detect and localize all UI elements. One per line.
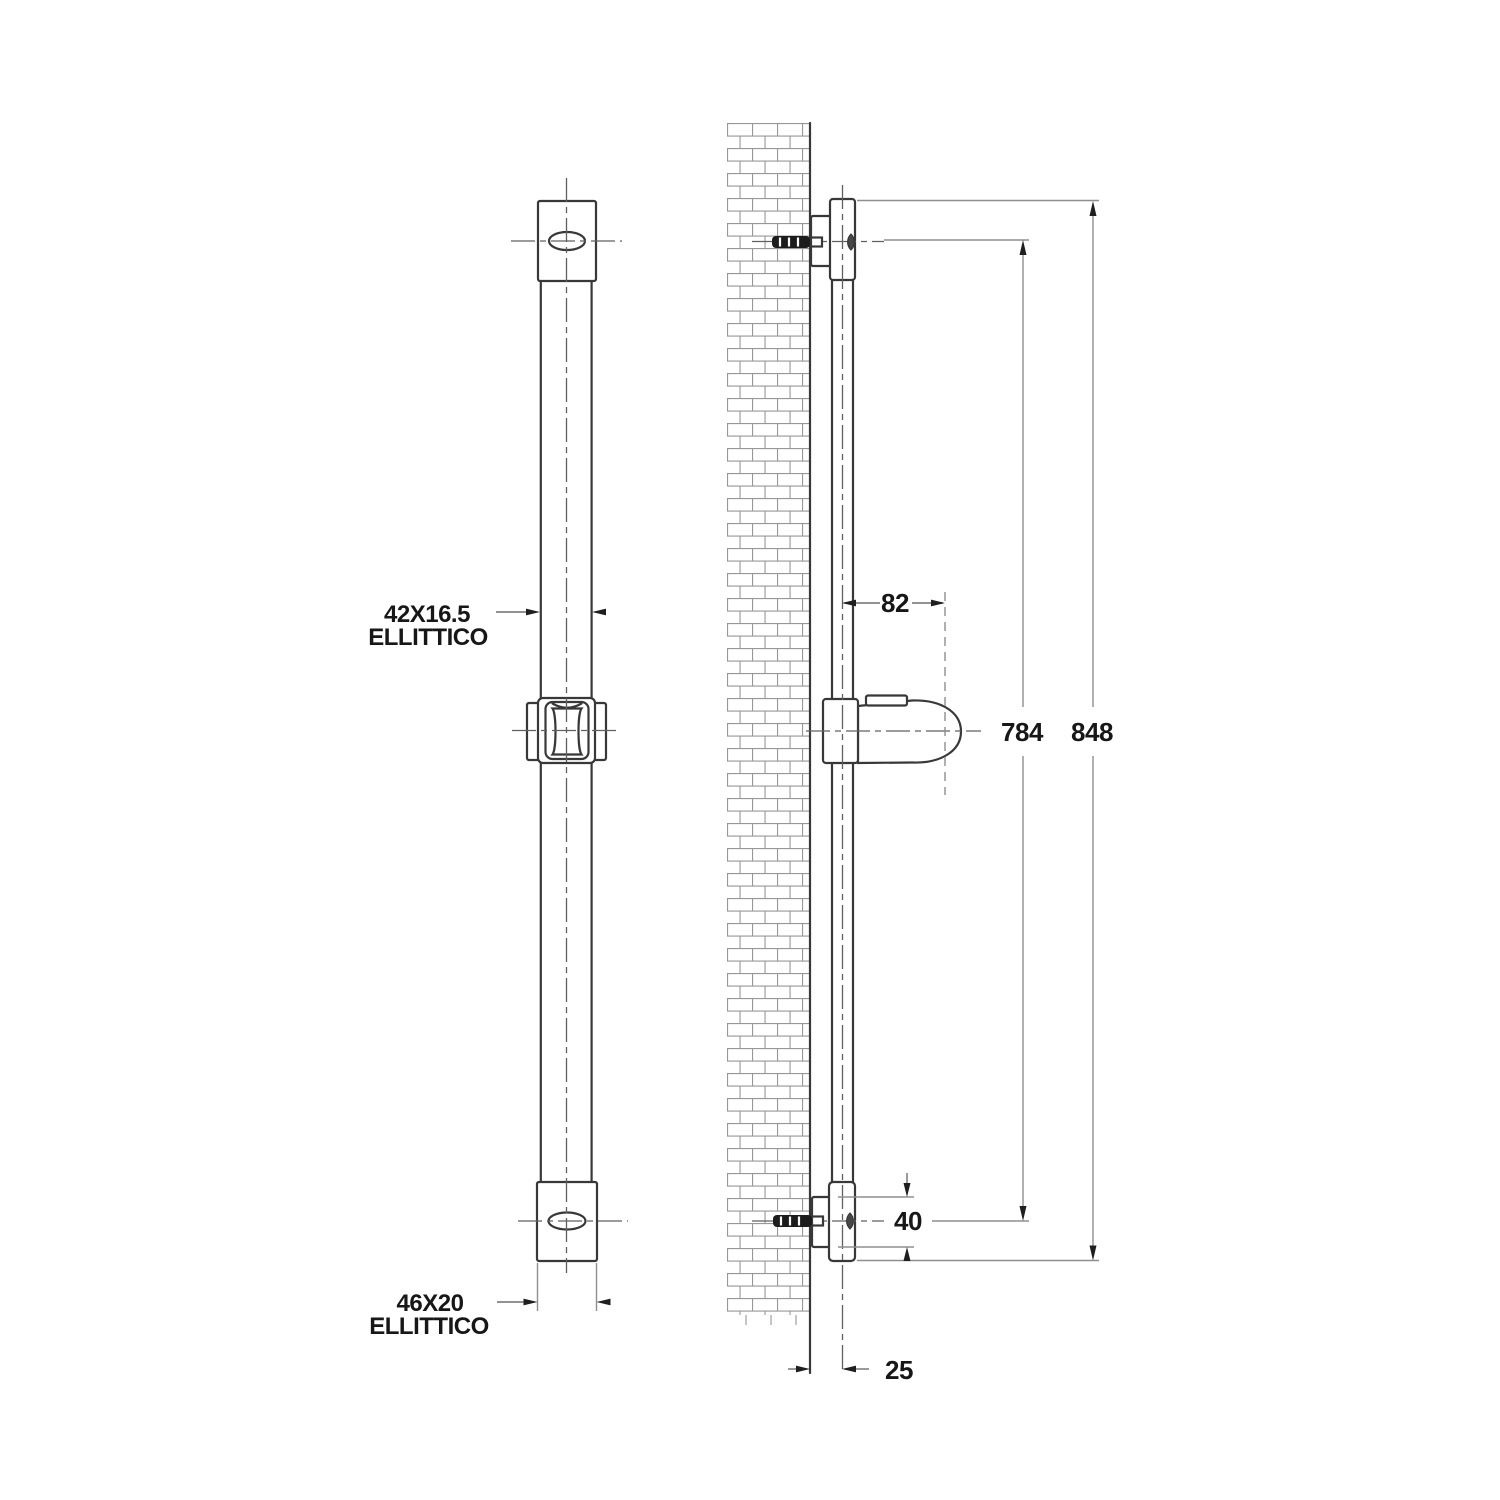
wall-bottom-joints	[746, 1315, 796, 1325]
arrowhead	[904, 1183, 911, 1197]
arrowhead	[524, 1299, 538, 1306]
bottom-rail-fixing-point	[847, 1213, 854, 1229]
arrowhead	[1090, 201, 1097, 216]
arrowhead	[1020, 240, 1027, 255]
arrowhead	[1020, 1206, 1027, 1221]
dim-holder-offset: 82	[842, 588, 945, 618]
top-rail-fixing-point	[848, 234, 855, 250]
dim-cap-section: 46X20 ELLITTICO	[369, 1263, 610, 1340]
bottom-screw-head	[812, 1217, 823, 1226]
arrowhead	[592, 609, 606, 616]
label-cap-shape: ELLITTICO	[369, 1313, 488, 1340]
side-view	[811, 199, 961, 1261]
arrowhead	[597, 1299, 611, 1306]
arrowhead	[1090, 1246, 1097, 1261]
label-tube-shape: ELLITTICO	[368, 624, 487, 651]
dim-tube-section: 42X16.5 ELLITTICO	[368, 601, 606, 651]
dim-wall-offset: 25	[788, 1355, 913, 1385]
arrowhead	[796, 1366, 810, 1373]
dim-40-label: 40	[894, 1206, 922, 1236]
arrowhead	[931, 600, 945, 607]
brick-wall	[727, 123, 810, 1373]
dim-25-label: 25	[885, 1355, 913, 1385]
brick-pattern	[727, 123, 810, 1315]
technical-drawing-canvas: 42X16.5 ELLITTICO 46X20 ELLITTICO 82	[0, 0, 1500, 1500]
top-screw-anchor	[772, 236, 810, 248]
bottom-screw-anchor	[773, 1215, 812, 1227]
top-screw-head	[811, 238, 822, 247]
arrowhead	[904, 1247, 911, 1261]
arrowhead	[842, 600, 856, 607]
arrowhead	[526, 609, 540, 616]
arrowhead	[842, 1366, 856, 1373]
dim-82-label: 82	[881, 588, 909, 618]
dim-784-label: 784	[1001, 717, 1044, 747]
holder-top-tab	[866, 696, 907, 706]
dim-848-label: 848	[1071, 717, 1113, 747]
